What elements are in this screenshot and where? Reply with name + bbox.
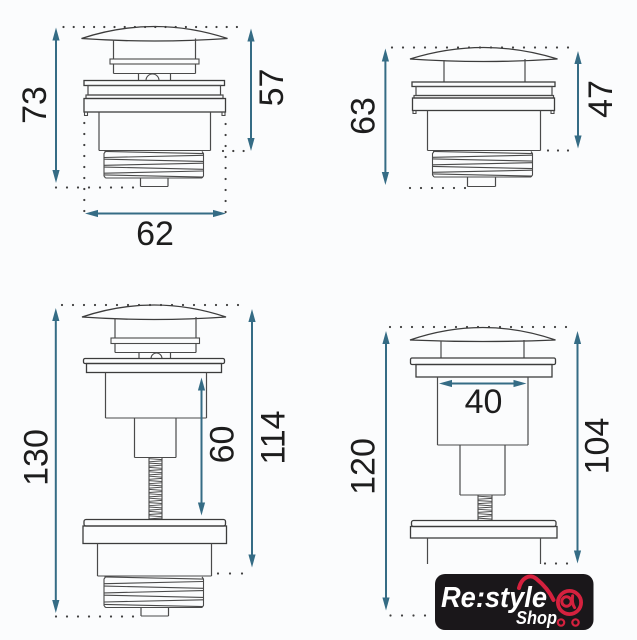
svg-text:47: 47 (582, 80, 620, 118)
svg-text:40: 40 (465, 383, 503, 421)
svg-text:120: 120 (345, 438, 383, 495)
svg-text:130: 130 (18, 429, 56, 486)
svg-text:Shop: Shop (516, 607, 557, 628)
svg-text:114: 114 (255, 410, 293, 464)
svg-text:63: 63 (345, 97, 383, 135)
svg-text:62: 62 (136, 215, 174, 253)
svg-text:73: 73 (16, 86, 54, 124)
svg-text:57: 57 (253, 69, 291, 107)
svg-text:104: 104 (579, 418, 617, 475)
svg-text:60: 60 (204, 426, 242, 464)
